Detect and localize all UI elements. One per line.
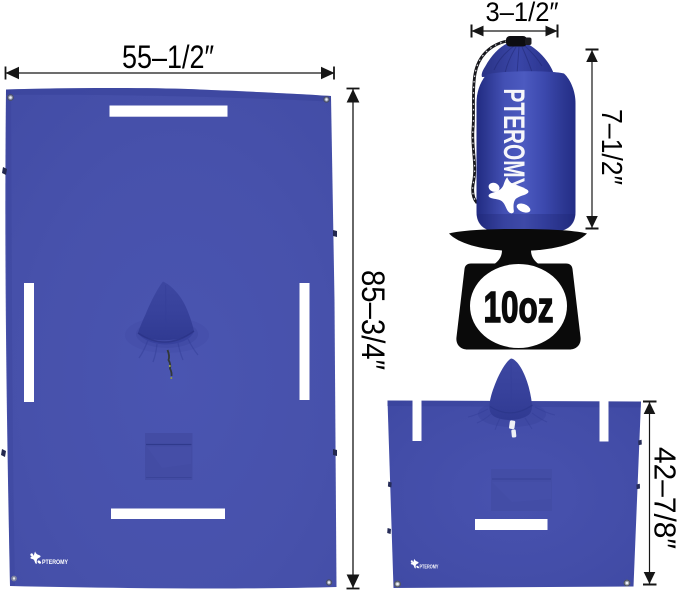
svg-text:PTEROMY: PTEROMY [42, 559, 68, 566]
svg-text:42–7/8″: 42–7/8″ [648, 447, 679, 549]
svg-text:PTEROMY: PTEROMY [420, 565, 439, 571]
svg-text:PTEROMY: PTEROMY [497, 89, 530, 192]
svg-text:85–3/4″: 85–3/4″ [355, 270, 391, 370]
svg-text:3–1/2″: 3–1/2″ [486, 0, 559, 27]
svg-text:10oz: 10oz [484, 283, 554, 332]
svg-text:55–1/2″: 55–1/2″ [122, 39, 214, 75]
svg-text:7–1/2″: 7–1/2″ [595, 109, 627, 185]
